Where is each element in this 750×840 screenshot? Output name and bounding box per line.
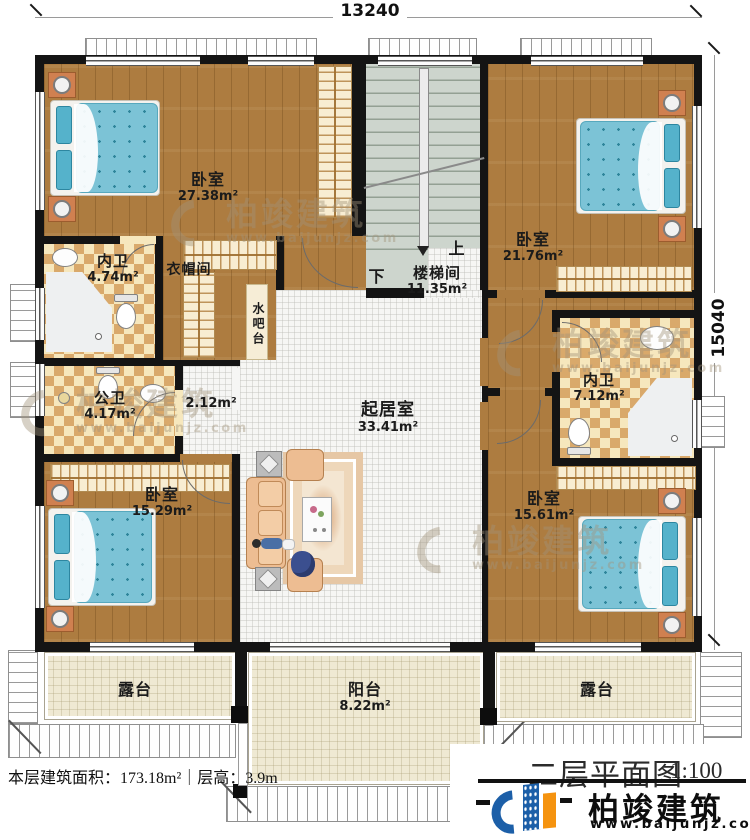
pillow-icon xyxy=(664,124,680,162)
logo-dash xyxy=(476,800,490,805)
lamp-icon xyxy=(51,610,69,628)
stair-up-label: 上 xyxy=(446,239,468,258)
logo-tower-orange xyxy=(543,792,556,828)
floor-plan-canvas: 13240 15040 xyxy=(0,0,750,840)
sofa-cushion xyxy=(258,510,283,536)
room-label-bedroom-tr: 卧室 21.76m² xyxy=(473,230,593,265)
door-opening xyxy=(120,236,156,244)
room-label-water-bar: 水吧台 xyxy=(247,296,265,352)
table-decor xyxy=(313,528,317,532)
brand-logo-icon xyxy=(490,784,582,838)
lamp-icon xyxy=(663,94,681,112)
room-label-balcony: 阳台 8.22m² xyxy=(328,680,402,715)
sink-icon xyxy=(52,248,78,267)
window xyxy=(248,56,314,66)
balcony-side-wall xyxy=(235,652,247,708)
footer-separator: ｜ xyxy=(181,770,197,787)
stair-direction-arrow xyxy=(417,246,429,256)
toilet-icon xyxy=(568,418,590,446)
window xyxy=(35,506,45,608)
bed-sheet xyxy=(638,520,662,608)
room-label-terrace-left: 露台 xyxy=(105,680,165,699)
window xyxy=(378,56,472,66)
room-label-bedroom-tl: 卧室 27.38m² xyxy=(148,170,268,205)
door-opening xyxy=(175,390,183,436)
railing xyxy=(700,652,742,738)
window xyxy=(692,106,702,228)
table-decor xyxy=(322,528,326,532)
room-label-stairwell: 楼梯间 11.35m² xyxy=(398,264,476,298)
toilet-icon xyxy=(567,447,591,455)
room-label-bedroom-br: 卧室 15.61m² xyxy=(506,489,582,524)
plant-icon xyxy=(291,551,315,577)
ac-platform xyxy=(10,284,38,342)
table-decor xyxy=(318,511,324,517)
pillow-icon xyxy=(54,560,70,600)
nightstand-icon xyxy=(658,90,686,116)
nightstand-icon xyxy=(48,72,76,98)
floor-height-label: 层高： xyxy=(197,770,245,787)
side-table-icon xyxy=(255,567,281,591)
window xyxy=(535,642,641,652)
room-label-small-closet: 2.12m² xyxy=(183,396,239,412)
door-opening xyxy=(480,402,488,450)
railing xyxy=(8,724,236,758)
door-opening xyxy=(480,338,488,386)
pillow-icon xyxy=(662,522,678,560)
dimension-tick xyxy=(30,4,43,17)
corner-post xyxy=(231,706,248,723)
wardrobe-icon xyxy=(556,266,692,292)
floor-area-value: 173.18m² xyxy=(120,770,181,787)
sofa-icon xyxy=(246,477,286,569)
room-label-bedroom-bl: 卧室 15.29m² xyxy=(123,485,201,520)
room-label-bath-tl: 内卫 4.74m² xyxy=(83,252,143,286)
lamp-icon xyxy=(53,200,71,218)
pillow-icon xyxy=(56,150,72,190)
dimension-top-value: 13240 xyxy=(333,1,407,21)
wardrobe-icon xyxy=(183,272,215,358)
pillow-icon xyxy=(664,168,680,208)
door-opening xyxy=(497,290,545,298)
lamp-icon xyxy=(663,220,681,238)
sink-icon xyxy=(640,326,674,350)
shower-drain xyxy=(671,435,678,442)
toilet-icon xyxy=(114,294,138,302)
pillow-icon xyxy=(54,514,70,554)
window xyxy=(90,642,194,652)
table-top xyxy=(258,569,278,589)
ac-platform xyxy=(10,362,38,418)
person-head xyxy=(252,539,261,548)
dimension-tick xyxy=(690,5,703,18)
sofa-cushion xyxy=(258,481,283,507)
room-label-cloakroom: 衣帽间 xyxy=(158,262,220,279)
nightstand-icon xyxy=(46,606,74,632)
room-label-terrace-right: 露台 xyxy=(567,680,627,699)
title-block: 二层平面图 1:100 柏竣建筑 www.baijunjz.com xyxy=(450,744,750,840)
logo-dash xyxy=(560,798,572,803)
toilet-icon xyxy=(96,367,120,374)
pillow-icon xyxy=(662,566,678,606)
floor-area-label: 本层建筑面积： xyxy=(8,770,120,787)
wall-segment xyxy=(560,458,694,466)
pillow-icon xyxy=(56,106,72,144)
dimension-right-value: 15040 xyxy=(709,293,729,363)
dimension-tick xyxy=(708,42,721,55)
corner-post xyxy=(480,708,497,725)
floor-height-value: 3.9m xyxy=(245,770,277,787)
railing xyxy=(8,650,38,724)
armchair-icon xyxy=(286,449,324,481)
balcony-side-wall xyxy=(483,652,495,710)
stair-rail xyxy=(419,68,429,248)
pendant-lamp-icon xyxy=(58,392,70,404)
room-label-public-bath: 公卫 4.17m² xyxy=(79,389,141,423)
person-legs xyxy=(282,539,295,550)
lamp-icon xyxy=(663,616,681,634)
window xyxy=(35,92,45,210)
title-underline xyxy=(478,779,746,783)
wall-segment xyxy=(545,388,560,396)
table-decor xyxy=(310,506,317,513)
shower-drain xyxy=(95,333,102,340)
wardrobe-icon xyxy=(318,66,352,218)
wall-segment xyxy=(488,388,500,396)
logo-tower-blue xyxy=(523,783,541,831)
nightstand-icon xyxy=(658,488,686,514)
nightstand-icon xyxy=(658,216,686,242)
stair-down-label: 下 xyxy=(366,267,388,286)
lamp-icon xyxy=(51,484,69,502)
window xyxy=(35,288,45,340)
wall-segment xyxy=(552,372,560,466)
room-label-living: 起居室 33.41m² xyxy=(328,400,448,436)
window xyxy=(692,400,702,448)
window xyxy=(35,364,45,416)
lamp-icon xyxy=(663,492,681,510)
nightstand-icon xyxy=(46,480,74,506)
brand-url: www.baijunjz.com xyxy=(590,816,750,832)
wall-segment xyxy=(552,318,560,332)
side-table-icon xyxy=(256,451,282,477)
coffee-table-icon xyxy=(302,497,332,542)
toilet-icon xyxy=(116,303,136,329)
table-top xyxy=(259,454,279,474)
room-label-bath-r: 内卫 7.12m² xyxy=(566,371,632,405)
nightstand-icon xyxy=(658,612,686,638)
nightstand-icon xyxy=(48,196,76,222)
person-body xyxy=(261,538,283,549)
window xyxy=(692,518,702,616)
wall-segment xyxy=(552,310,694,318)
lamp-icon xyxy=(53,76,71,94)
window xyxy=(86,56,200,66)
sliding-door xyxy=(270,642,450,652)
bed-sheet xyxy=(638,122,662,210)
footer-info: 本层建筑面积：173.18m²｜层高：3.9m xyxy=(8,764,338,788)
window xyxy=(531,56,643,66)
wardrobe-icon xyxy=(556,466,696,490)
